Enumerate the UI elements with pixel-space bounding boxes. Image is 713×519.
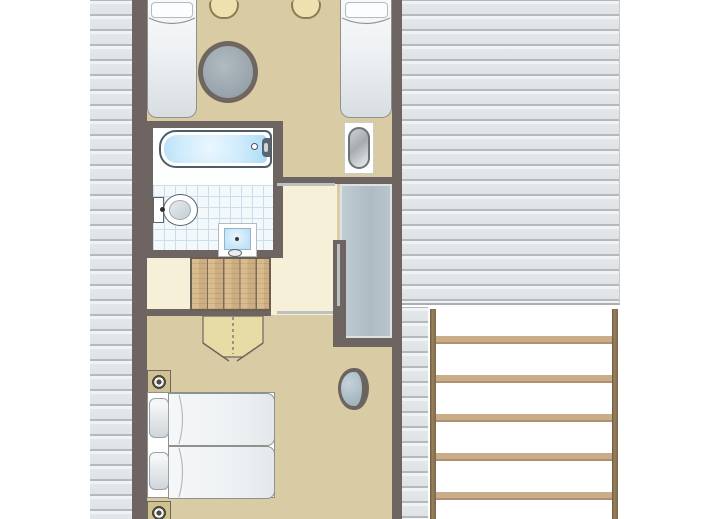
mattress-bottom <box>168 446 275 499</box>
washbasin <box>338 368 369 410</box>
toilet-bowl-inner <box>169 200 191 220</box>
floor-plan <box>0 0 713 519</box>
door-leaf-side <box>337 244 340 306</box>
blanket-edge <box>148 16 196 30</box>
bathroom-wall-top <box>147 121 283 128</box>
ladder-rung <box>436 492 612 500</box>
single-bed-left <box>147 0 197 118</box>
toilet-pan <box>348 127 370 169</box>
single-bed-right <box>340 0 392 118</box>
wall-exterior-left <box>132 0 147 519</box>
wall-exterior-right <box>392 0 402 519</box>
sink-drain <box>235 237 239 241</box>
pillow-1 <box>149 398 169 438</box>
ladder-rung <box>436 375 612 383</box>
blanket-edge <box>341 16 391 30</box>
blanket-crease <box>169 394 193 445</box>
pillow-2 <box>149 452 169 490</box>
bedside-lamp-1 <box>147 370 171 394</box>
roof-strip-right-lower <box>402 307 428 519</box>
roof-strip-left <box>90 0 132 519</box>
bedside-lamp-2 <box>147 501 171 519</box>
sink-faucet-icon <box>228 249 242 257</box>
door-leaf-top <box>277 183 335 186</box>
staircase <box>190 257 271 311</box>
ladder-rung <box>436 414 612 422</box>
wardrobe <box>340 184 392 338</box>
blanket-crease <box>169 447 193 498</box>
roof-surface-right <box>402 0 620 305</box>
bathtub-drain <box>251 143 258 150</box>
toilet-flush-dot <box>160 207 165 212</box>
mattress-top <box>168 393 275 446</box>
bathroom-wall-right <box>273 121 283 258</box>
stair-direction-arrow <box>200 314 266 368</box>
ladder-rung <box>436 453 612 461</box>
ladder-rung <box>436 336 612 344</box>
door-leaf-bottom <box>277 311 333 314</box>
round-table <box>198 41 258 103</box>
double-bed <box>147 392 275 498</box>
ladder-rail-right <box>612 309 618 519</box>
bathtub-faucet-icon <box>262 138 271 157</box>
